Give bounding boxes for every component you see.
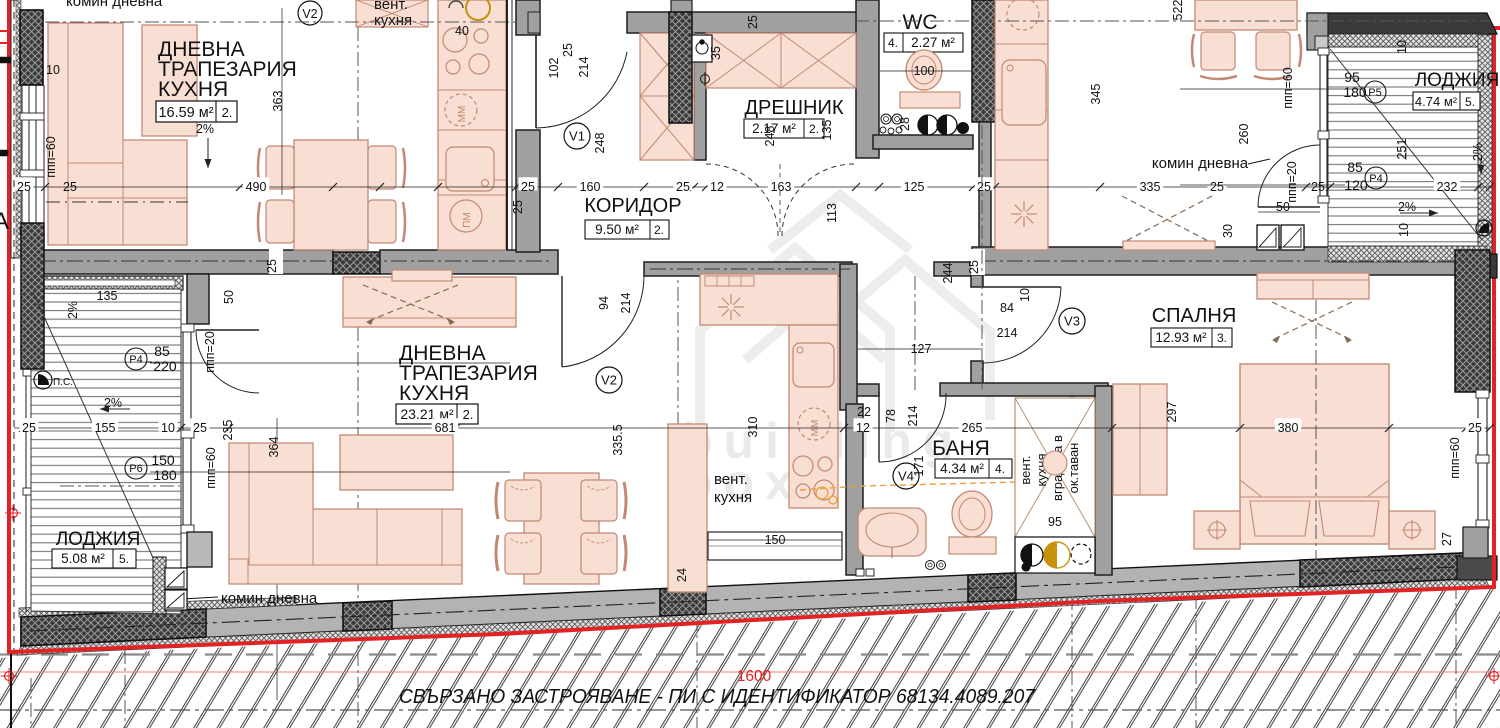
svg-text:СВЪРЗАНО ЗАСТРОЯВАНЕ - ПИ С ИД: СВЪРЗАНО ЗАСТРОЯВАНЕ - ПИ С ИДЕНТИФИКАТО… — [399, 685, 1036, 708]
svg-text:4.34 м²: 4.34 м² — [940, 461, 984, 476]
svg-text:25: 25 — [521, 180, 535, 194]
svg-text:125: 125 — [904, 180, 925, 194]
svg-text:25: 25 — [561, 43, 575, 57]
svg-text:94: 94 — [597, 296, 611, 310]
svg-text:ДРЕШНИК: ДРЕШНИК — [744, 97, 843, 119]
svg-text:490: 490 — [246, 180, 267, 194]
svg-text:135: 135 — [820, 120, 834, 141]
svg-text:12.93 м²: 12.93 м² — [1155, 330, 1207, 345]
svg-text:2.: 2. — [654, 223, 664, 237]
svg-text:364: 364 — [267, 437, 281, 458]
svg-text:30: 30 — [1221, 224, 1235, 238]
svg-text:363: 363 — [271, 91, 285, 112]
svg-text:310: 310 — [746, 417, 760, 438]
svg-text:3.: 3. — [1217, 331, 1227, 345]
svg-text:522: 522 — [1171, 0, 1185, 20]
svg-text:235: 235 — [221, 420, 235, 441]
svg-text:335.5: 335.5 — [611, 424, 625, 455]
svg-text:2%: 2% — [1471, 143, 1485, 161]
svg-text:25: 25 — [746, 15, 760, 29]
svg-text:35: 35 — [709, 46, 723, 60]
svg-text:9.50 м²: 9.50 м² — [595, 222, 639, 237]
svg-text:25: 25 — [1311, 180, 1325, 194]
svg-text:ппп=20: ппп=20 — [203, 331, 217, 373]
svg-text:25: 25 — [265, 259, 279, 273]
svg-text:ЛОДЖИЯ: ЛОДЖИЯ — [56, 529, 141, 550]
svg-text:V1: V1 — [569, 129, 585, 144]
svg-text:4.: 4. — [888, 36, 898, 50]
svg-text:113: 113 — [825, 203, 839, 223]
svg-text:10: 10 — [1395, 40, 1409, 54]
svg-text:85: 85 — [1347, 159, 1363, 175]
svg-text:V2: V2 — [601, 373, 617, 388]
svg-text:244: 244 — [941, 263, 955, 284]
svg-text:120: 120 — [1344, 177, 1368, 193]
svg-text:ппп=60: ппп=60 — [44, 136, 58, 178]
svg-text:25: 25 — [1210, 180, 1224, 194]
svg-text:25: 25 — [63, 180, 77, 194]
svg-text:27: 27 — [1440, 532, 1454, 546]
svg-text:2.27 м²: 2.27 м² — [911, 35, 955, 50]
svg-text:25: 25 — [1468, 421, 1482, 435]
svg-text:2.: 2. — [222, 105, 233, 120]
svg-text:248: 248 — [593, 133, 607, 154]
svg-text:ппп=60: ппп=60 — [204, 447, 218, 489]
svg-text:24: 24 — [675, 568, 689, 582]
svg-text:214: 214 — [997, 326, 1018, 340]
svg-text:вент.: вент. — [714, 471, 748, 488]
svg-text:155: 155 — [95, 421, 116, 435]
svg-text:WC: WC — [903, 11, 938, 34]
svg-text:Р5: Р5 — [1368, 87, 1381, 99]
svg-text:2.: 2. — [463, 407, 474, 422]
svg-text:А: А — [0, 208, 9, 235]
svg-text:вент.: вент. — [1018, 455, 1033, 484]
svg-text:95: 95 — [1344, 69, 1360, 85]
svg-text:Р4: Р4 — [1369, 173, 1382, 185]
svg-text:ПМ: ПМ — [462, 212, 473, 228]
svg-text:КУХНЯ: КУХНЯ — [158, 78, 228, 101]
svg-text:12: 12 — [856, 421, 870, 435]
svg-text:95: 95 — [1048, 515, 1062, 529]
svg-text:ппп=60: ппп=60 — [1281, 67, 1295, 109]
svg-text:50: 50 — [222, 290, 236, 304]
svg-text:265: 265 — [962, 421, 983, 435]
svg-text:251: 251 — [1395, 139, 1409, 160]
svg-text:5.: 5. — [119, 552, 129, 566]
svg-text:12: 12 — [710, 180, 724, 194]
svg-text:10: 10 — [1397, 223, 1411, 237]
svg-text:25: 25 — [967, 260, 981, 274]
svg-text:2.: 2. — [809, 122, 819, 136]
svg-text:214: 214 — [619, 293, 633, 314]
svg-text:25: 25 — [193, 421, 207, 435]
svg-text:25: 25 — [977, 180, 991, 194]
svg-text:комин дневна: комин дневна — [66, 0, 163, 10]
svg-text:150: 150 — [151, 452, 175, 468]
svg-text:135: 135 — [97, 289, 118, 303]
svg-text:10: 10 — [161, 421, 175, 435]
svg-text:КОРИДОР: КОРИДОР — [584, 195, 681, 217]
svg-text:297: 297 — [1165, 402, 1179, 423]
svg-text:5.08 м²: 5.08 м² — [61, 551, 105, 566]
svg-text:Р4: Р4 — [129, 354, 142, 366]
svg-text:163: 163 — [771, 180, 792, 194]
svg-text:КУХНЯ: КУХНЯ — [399, 382, 469, 405]
svg-text:кухня: кухня — [714, 489, 752, 506]
svg-text:4.74 м²: 4.74 м² — [1415, 94, 1458, 109]
svg-text:214: 214 — [906, 406, 920, 427]
svg-text:V3: V3 — [1064, 314, 1080, 329]
svg-text:40: 40 — [455, 24, 469, 38]
svg-text:214: 214 — [577, 57, 591, 78]
svg-text:V4: V4 — [898, 469, 914, 484]
svg-text:2%: 2% — [1398, 200, 1416, 214]
svg-text:ок.таван: ок.таван — [1066, 443, 1081, 494]
svg-text:78: 78 — [884, 409, 898, 423]
svg-text:V2: V2 — [302, 7, 317, 21]
svg-text:кухня: кухня — [374, 12, 412, 29]
svg-text:180: 180 — [153, 467, 177, 483]
svg-text:комин дневна: комин дневна — [1152, 155, 1249, 172]
svg-text:232: 232 — [1437, 180, 1458, 194]
svg-text:85: 85 — [154, 343, 170, 359]
svg-text:ппп=20: ппп=20 — [1285, 161, 1299, 203]
svg-text:260: 260 — [1237, 124, 1251, 145]
svg-text:25: 25 — [511, 200, 525, 214]
svg-text:345: 345 — [1089, 84, 1103, 105]
svg-text:160: 160 — [580, 180, 601, 194]
svg-text:1600: 1600 — [737, 668, 772, 685]
svg-text:4.: 4. — [995, 462, 1005, 476]
svg-text:2%: 2% — [196, 122, 214, 136]
svg-text:84: 84 — [1000, 301, 1014, 315]
svg-text:25: 25 — [22, 421, 36, 435]
svg-text:380: 380 — [1278, 421, 1299, 435]
svg-text:335: 335 — [1140, 180, 1161, 194]
svg-text:БАНЯ: БАНЯ — [932, 437, 990, 460]
svg-text:25: 25 — [17, 180, 31, 194]
svg-text:2%: 2% — [66, 301, 80, 319]
svg-text:комин дневна: комин дневна — [221, 590, 318, 607]
svg-text:681: 681 — [435, 421, 456, 435]
svg-text:СПАЛНЯ: СПАЛНЯ — [1152, 305, 1237, 327]
svg-text:10: 10 — [1018, 288, 1032, 302]
svg-text:ппп=60: ппп=60 — [1448, 437, 1462, 479]
svg-text:220: 220 — [153, 358, 177, 374]
svg-text:П.С.: П.С. — [53, 377, 73, 388]
svg-text:180: 180 — [1343, 84, 1367, 100]
svg-text:5.: 5. — [1465, 95, 1475, 109]
svg-text:25: 25 — [676, 180, 690, 194]
svg-text:ЛОДЖИЯ: ЛОДЖИЯ — [1415, 70, 1500, 91]
svg-text:248: 248 — [763, 126, 777, 147]
svg-text:22: 22 — [857, 405, 871, 419]
svg-text:MM: MM — [457, 106, 468, 123]
svg-text:16.59 м²: 16.59 м² — [158, 105, 213, 121]
svg-text:102: 102 — [547, 58, 561, 79]
svg-text:Р6: Р6 — [129, 463, 142, 475]
svg-text:28: 28 — [898, 117, 912, 131]
svg-text:10: 10 — [46, 63, 60, 77]
